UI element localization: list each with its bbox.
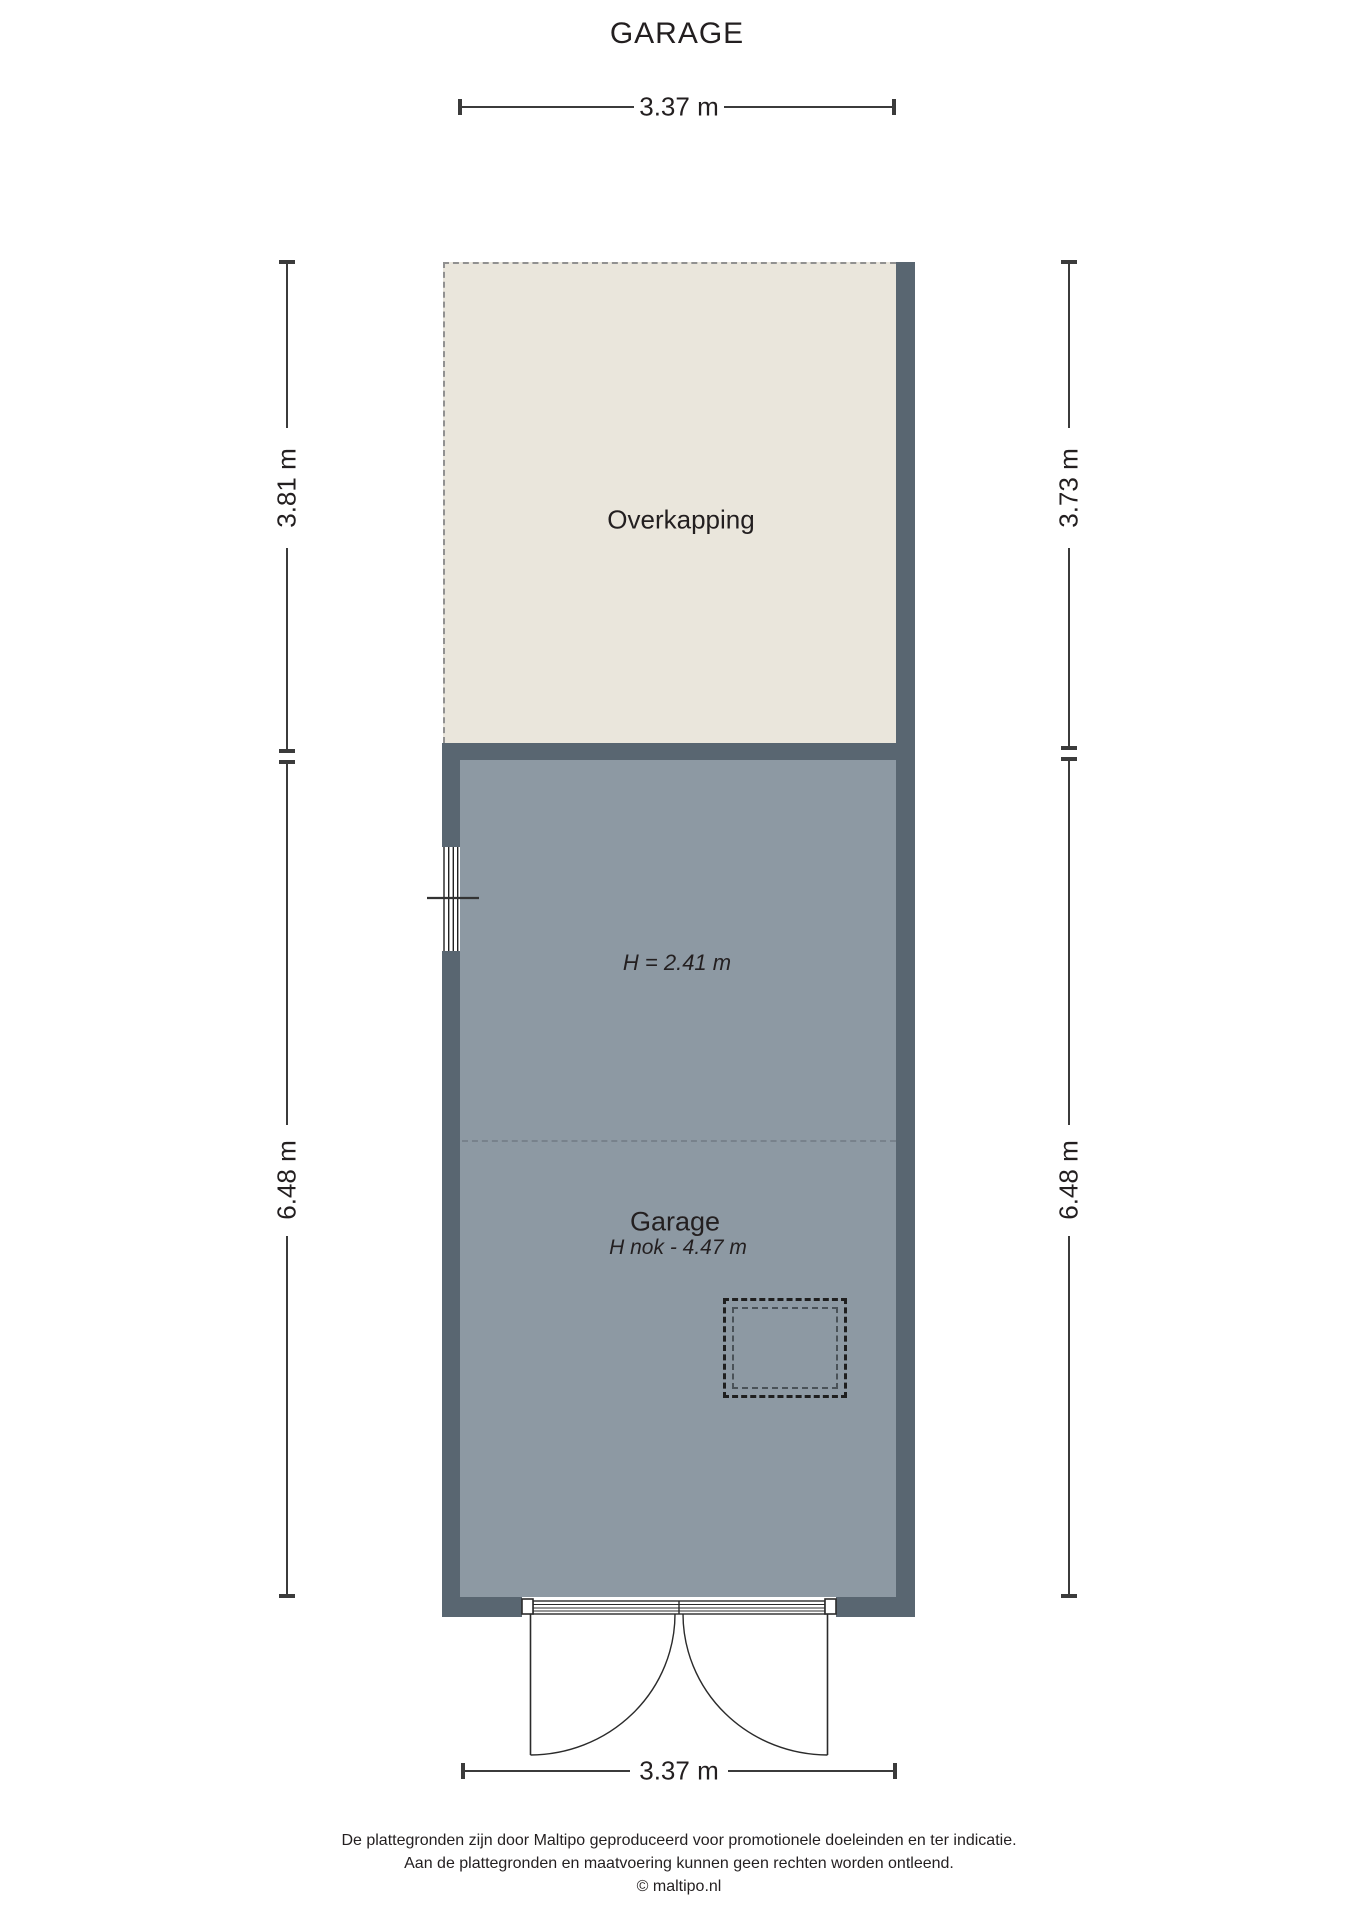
dimension-bottom: 3.37 m xyxy=(639,1756,719,1787)
dimension-lines xyxy=(287,107,1069,1771)
overkapping-label: Overkapping xyxy=(607,505,754,536)
footer-disclaimer: De plattegronden zijn door Maltipo gepro… xyxy=(0,1829,1358,1898)
garage-label: Garage xyxy=(630,1207,720,1238)
dimension-ticks xyxy=(279,99,1077,1779)
dimension-left-lower: 6.48 m xyxy=(272,1140,303,1220)
double-door xyxy=(522,1599,836,1755)
garage-height-label: H = 2.41 m xyxy=(623,950,731,976)
dimension-top: 3.37 m xyxy=(639,92,719,123)
dimension-left-upper: 3.81 m xyxy=(272,448,303,528)
footer-line-1: De plattegronden zijn door Maltipo gepro… xyxy=(0,1829,1358,1852)
footer-line-2: Aan de plattegronden en maatvoering kunn… xyxy=(0,1852,1358,1875)
window xyxy=(427,847,479,951)
dimension-right-upper: 3.73 m xyxy=(1054,448,1085,528)
garage-ridge-height-label: H nok - 4.47 m xyxy=(609,1236,747,1260)
floorplan-page: GARAGE xyxy=(0,0,1358,1920)
footer-copyright: © maltipo.nl xyxy=(0,1875,1358,1898)
dimension-right-lower: 6.48 m xyxy=(1054,1140,1085,1220)
